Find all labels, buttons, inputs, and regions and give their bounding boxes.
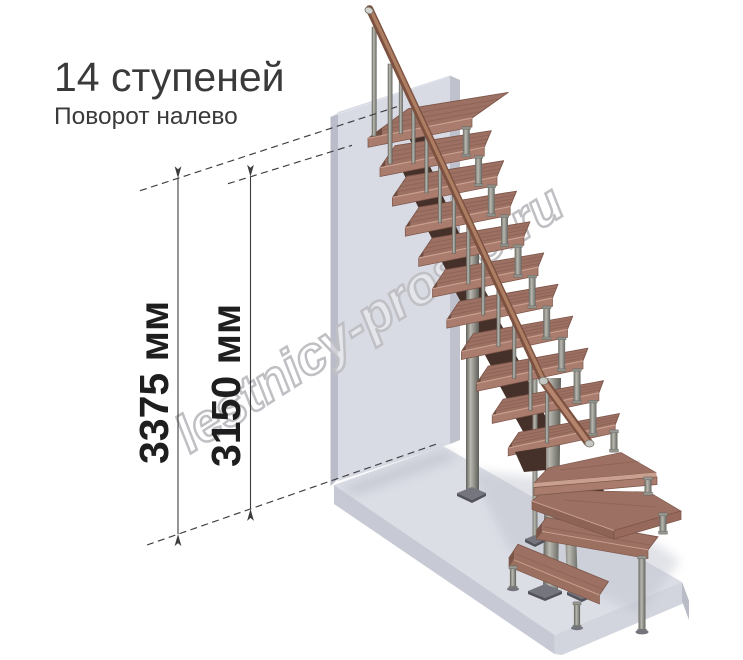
svg-text:Поворот налево: Поворот налево [54, 103, 238, 130]
svg-text:14 ступеней: 14 ступеней [54, 54, 285, 100]
svg-text:3375 мм: 3375 мм [131, 301, 177, 464]
svg-text:3150 мм: 3150 мм [203, 304, 249, 467]
